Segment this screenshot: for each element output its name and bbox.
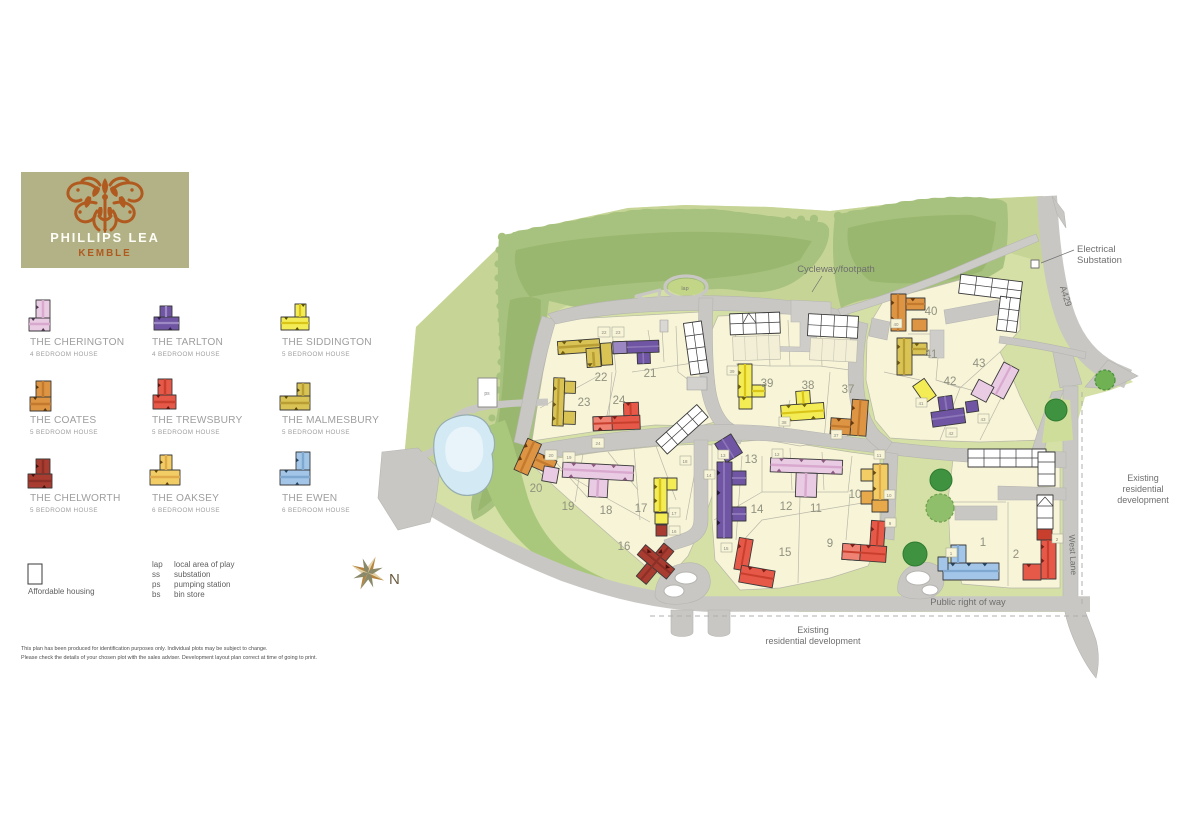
svg-text:THE TARLTON: THE TARLTON [152,337,223,348]
svg-text:41: 41 [925,349,938,361]
svg-text:42: 42 [948,431,954,436]
svg-text:38: 38 [802,380,815,392]
svg-text:5 BEDROOM HOUSE: 5 BEDROOM HOUSE [282,351,350,358]
svg-text:24: 24 [613,395,626,407]
svg-text:substation: substation [174,570,210,579]
svg-text:40: 40 [893,322,899,327]
svg-text:22: 22 [595,372,608,384]
svg-text:11: 11 [877,453,882,458]
svg-text:11: 11 [810,503,822,515]
svg-text:2: 2 [1013,549,1019,561]
svg-text:4 BEDROOM HOUSE: 4 BEDROOM HOUSE [30,351,98,358]
svg-text:4 BEDROOM HOUSE: 4 BEDROOM HOUSE [152,351,220,358]
svg-text:38: 38 [781,420,787,425]
svg-text:5 BEDROOM HOUSE: 5 BEDROOM HOUSE [152,429,220,436]
svg-text:19: 19 [566,455,572,460]
svg-text:bin store: bin store [174,590,205,599]
svg-text:ss: ss [152,570,160,579]
svg-text:THE COATES: THE COATES [30,415,96,426]
svg-text:43: 43 [973,358,986,370]
svg-text:12: 12 [780,501,793,513]
svg-text:13: 13 [720,453,726,458]
svg-text:15: 15 [779,547,792,559]
svg-text:10: 10 [886,493,892,498]
svg-text:12: 12 [774,452,780,457]
svg-text:Public right of way: Public right of way [930,597,1006,607]
svg-text:6 BEDROOM HOUSE: 6 BEDROOM HOUSE [282,507,350,514]
svg-text:THE OAKSEY: THE OAKSEY [152,493,219,504]
svg-text:Existing: Existing [797,625,829,635]
svg-text:bs: bs [152,590,160,599]
svg-text:10: 10 [849,489,862,501]
svg-text:THE CHELWORTH: THE CHELWORTH [30,493,121,504]
svg-text:lap: lap [152,560,163,569]
svg-text:local area of play: local area of play [174,560,234,569]
svg-text:KEMBLE: KEMBLE [78,248,131,259]
svg-text:residential development: residential development [765,636,861,646]
svg-text:19: 19 [562,501,575,513]
svg-text:16: 16 [618,541,631,553]
svg-text:23: 23 [578,397,591,409]
svg-text:THE EWEN: THE EWEN [282,493,337,504]
svg-text:17: 17 [635,503,648,515]
svg-text:1: 1 [980,537,986,549]
svg-text:5 BEDROOM HOUSE: 5 BEDROOM HOUSE [282,429,350,436]
svg-text:15: 15 [723,546,729,551]
svg-text:18: 18 [600,505,613,517]
svg-text:24: 24 [595,441,601,446]
svg-text:West Lane: West Lane [1067,534,1079,575]
svg-text:39: 39 [729,369,735,374]
svg-text:9: 9 [827,538,833,550]
svg-text:PHILLIPS LEA: PHILLIPS LEA [50,230,160,245]
svg-text:ps: ps [152,580,160,589]
svg-text:22: 22 [601,330,607,335]
svg-text:16: 16 [671,529,677,534]
svg-text:20: 20 [548,453,554,458]
svg-text:17: 17 [671,511,677,516]
svg-text:13: 13 [745,454,758,466]
svg-text:18: 18 [682,459,688,464]
svg-text:lap: lap [681,286,688,292]
svg-text:Cycleway/footpath: Cycleway/footpath [797,264,875,275]
svg-text:23: 23 [615,330,621,335]
svg-text:43: 43 [980,417,986,422]
svg-text:N: N [389,571,400,588]
svg-text:ps: ps [484,391,490,397]
svg-text:37: 37 [833,433,839,438]
svg-text:5 BEDROOM HOUSE: 5 BEDROOM HOUSE [30,507,98,514]
svg-text:Please check the details of yo: Please check the details of your chosen … [21,655,317,661]
svg-text:37: 37 [842,384,855,396]
svg-text:pumping station: pumping station [174,580,230,589]
svg-text:Electrical: Electrical [1077,244,1116,255]
svg-text:6 BEDROOM HOUSE: 6 BEDROOM HOUSE [152,507,220,514]
svg-text:THE MALMESBURY: THE MALMESBURY [282,415,379,426]
svg-text:14: 14 [706,473,712,478]
svg-text:40: 40 [925,306,938,318]
svg-text:Affordable housing: Affordable housing [28,587,95,596]
svg-text:42: 42 [944,376,957,388]
svg-text:Existing: Existing [1127,473,1159,483]
svg-text:21: 21 [644,368,657,380]
svg-text:39: 39 [761,378,774,390]
svg-text:20: 20 [530,483,543,495]
svg-text:14: 14 [751,504,764,516]
svg-text:development: development [1117,495,1169,505]
svg-text:residential: residential [1122,484,1163,494]
svg-text:41: 41 [918,401,924,406]
svg-text:Substation: Substation [1077,255,1122,266]
svg-text:This plan has been produced fo: This plan has been produced for identifi… [21,646,268,652]
svg-text:THE TREWSBURY: THE TREWSBURY [152,415,243,426]
svg-text:THE CHERINGTON: THE CHERINGTON [30,337,124,348]
svg-text:THE SIDDINGTON: THE SIDDINGTON [282,337,372,348]
svg-text:5 BEDROOM HOUSE: 5 BEDROOM HOUSE [30,429,98,436]
